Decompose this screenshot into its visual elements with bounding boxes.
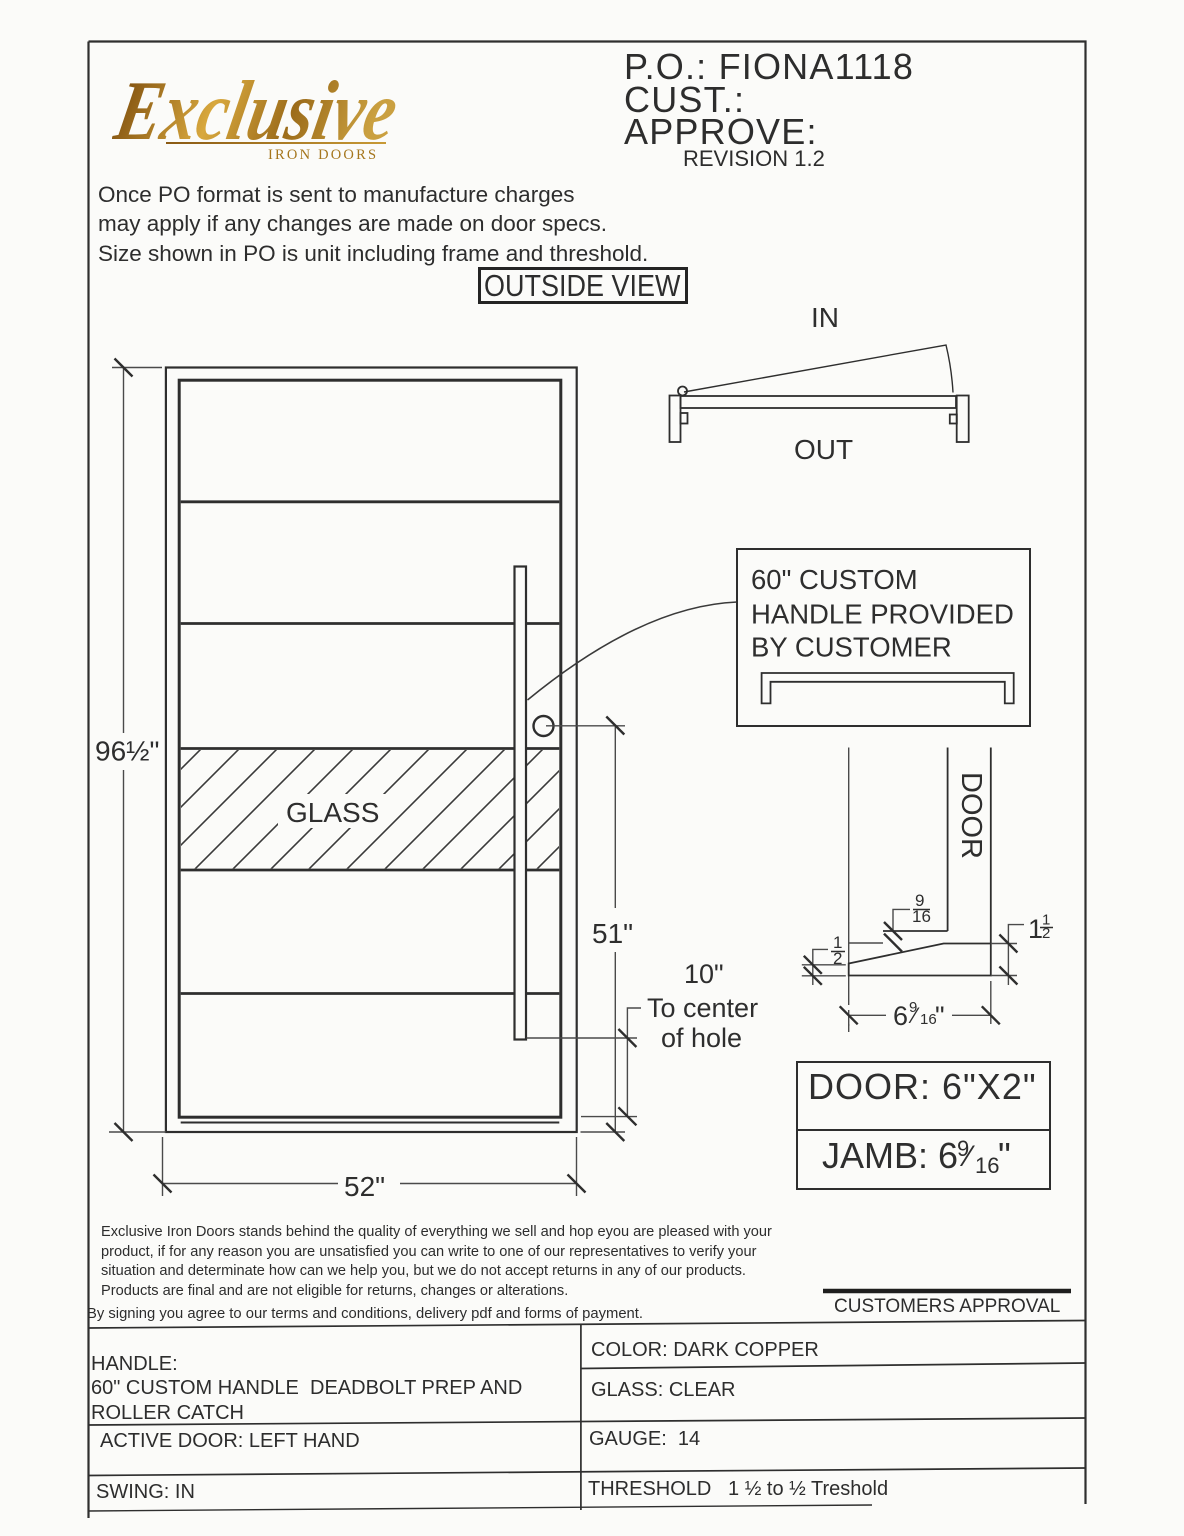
svg-text:of hole: of hole: [661, 1023, 742, 1053]
svg-text:2: 2: [833, 949, 842, 968]
svg-text:HANDLE PROVIDED: HANDLE PROVIDED: [751, 599, 1014, 630]
svg-text:": ": [935, 1001, 945, 1031]
svg-text:96½": 96½": [95, 736, 159, 767]
svg-text:DOOR: DOOR: [955, 772, 987, 859]
svg-text:51": 51": [592, 918, 633, 949]
svg-text:16: 16: [912, 907, 931, 926]
svg-text:To center: To center: [647, 993, 758, 1023]
svg-text:": ": [998, 1135, 1011, 1176]
svg-text:DOOR: 6"X2": DOOR: 6"X2": [808, 1066, 1037, 1107]
svg-text:BY CUSTOMER: BY CUSTOMER: [751, 632, 952, 663]
svg-text:6: 6: [893, 1001, 908, 1031]
svg-text:IN: IN: [811, 302, 839, 333]
svg-text:2: 2: [1042, 925, 1050, 942]
svg-text:JAMB: 6: JAMB: 6: [822, 1135, 958, 1176]
svg-text:16: 16: [975, 1153, 999, 1178]
svg-text:OUT: OUT: [794, 434, 853, 465]
svg-text:10": 10": [684, 959, 724, 989]
svg-text:60" CUSTOM: 60" CUSTOM: [751, 564, 918, 595]
svg-text:GLASS: GLASS: [286, 797, 379, 828]
svg-text:52": 52": [344, 1171, 385, 1202]
svg-text:1: 1: [1028, 914, 1043, 944]
